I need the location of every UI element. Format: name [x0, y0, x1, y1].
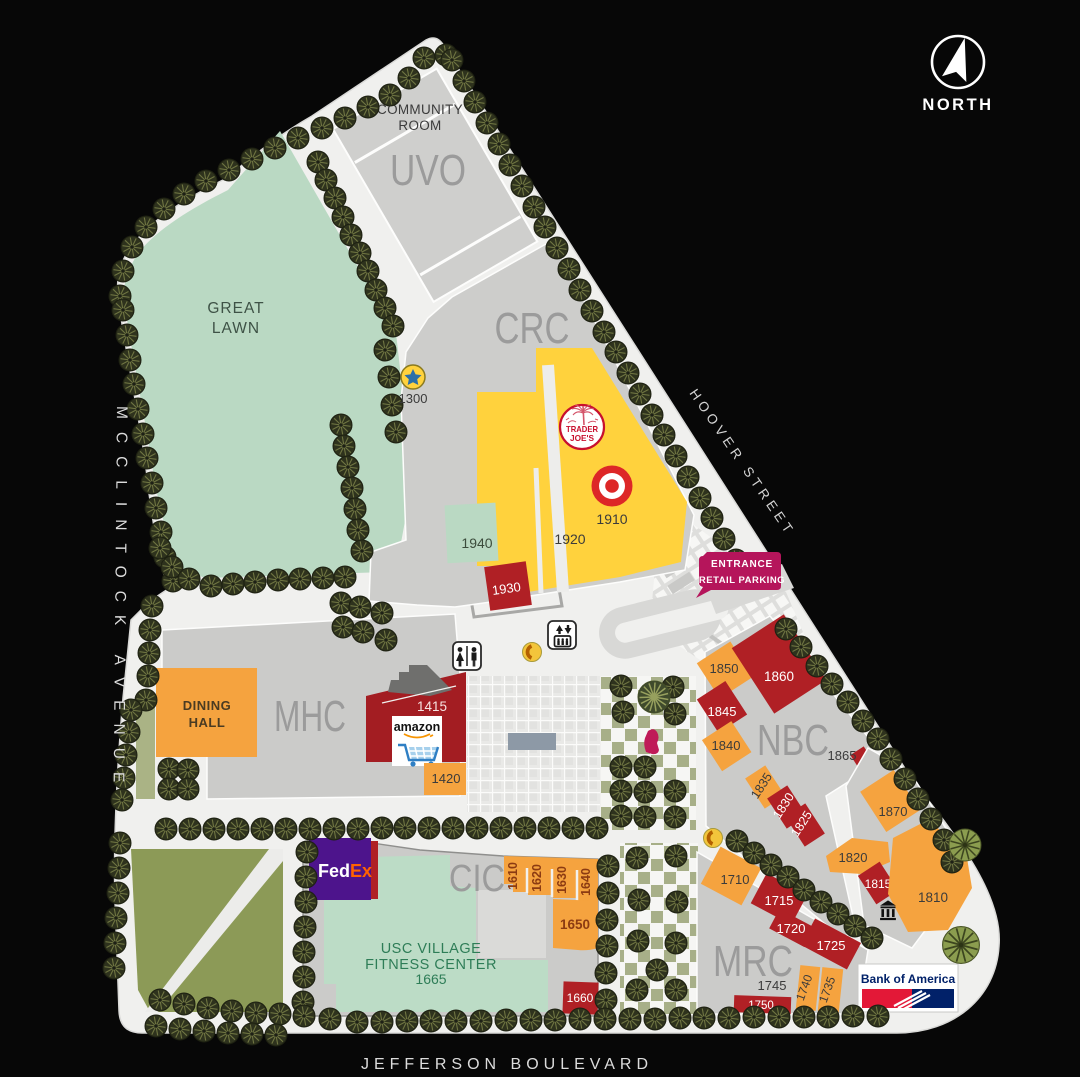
- svg-text:1865: 1865: [828, 748, 857, 763]
- svg-text:HALL: HALL: [189, 715, 226, 730]
- svg-text:JEFFERSON BOULEVARD: JEFFERSON BOULEVARD: [361, 1056, 653, 1073]
- svg-text:1300: 1300: [399, 391, 428, 406]
- svg-text:NBC: NBC: [757, 716, 829, 765]
- svg-text:1650: 1650: [560, 917, 590, 932]
- svg-text:1815: 1815: [865, 877, 892, 891]
- svg-text:1660: 1660: [567, 991, 594, 1005]
- svg-text:1820: 1820: [839, 850, 868, 865]
- svg-text:Bank of America: Bank of America: [861, 972, 956, 986]
- svg-text:1860: 1860: [764, 669, 794, 684]
- svg-text:UVO: UVO: [390, 146, 466, 195]
- svg-text:1840: 1840: [712, 738, 741, 753]
- svg-text:FedEx: FedEx: [318, 861, 372, 881]
- svg-text:ROOM: ROOM: [398, 118, 441, 133]
- svg-text:MHC: MHC: [274, 692, 346, 741]
- svg-text:1420: 1420: [432, 771, 461, 786]
- svg-text:1725: 1725: [817, 938, 846, 953]
- svg-text:LAWN: LAWN: [212, 320, 260, 337]
- svg-text:MCCLINTOCK AVENUE: MCCLINTOCK AVENUE: [110, 406, 130, 795]
- svg-text:1610: 1610: [506, 862, 520, 890]
- svg-text:1845: 1845: [708, 704, 737, 719]
- svg-text:1640: 1640: [579, 868, 593, 896]
- svg-text:1810: 1810: [918, 890, 948, 905]
- svg-text:NORTH: NORTH: [922, 96, 993, 114]
- svg-text:1620: 1620: [530, 864, 544, 892]
- svg-text:1920: 1920: [554, 531, 585, 547]
- svg-text:USC VILLAGE: USC VILLAGE: [381, 941, 482, 957]
- svg-text:CRC: CRC: [495, 304, 570, 353]
- svg-text:1710: 1710: [721, 872, 750, 887]
- svg-text:1745: 1745: [758, 978, 787, 993]
- svg-text:amazon: amazon: [394, 720, 441, 734]
- svg-text:1630: 1630: [555, 866, 569, 894]
- svg-text:RETAIL PARKING: RETAIL PARKING: [699, 575, 785, 586]
- svg-text:1415: 1415: [417, 699, 447, 714]
- svg-text:1870: 1870: [879, 804, 908, 819]
- svg-text:1850: 1850: [710, 661, 739, 676]
- svg-text:GREAT: GREAT: [207, 300, 264, 317]
- svg-text:DINING: DINING: [183, 698, 232, 713]
- svg-text:1910: 1910: [596, 511, 627, 527]
- svg-text:1720: 1720: [777, 921, 806, 936]
- svg-text:JOE'S: JOE'S: [570, 433, 594, 443]
- svg-text:1940: 1940: [461, 535, 492, 551]
- svg-text:1715: 1715: [765, 893, 794, 908]
- svg-text:ENTRANCE: ENTRANCE: [711, 559, 773, 570]
- svg-text:CIC: CIC: [449, 858, 505, 900]
- svg-text:1665: 1665: [415, 971, 446, 987]
